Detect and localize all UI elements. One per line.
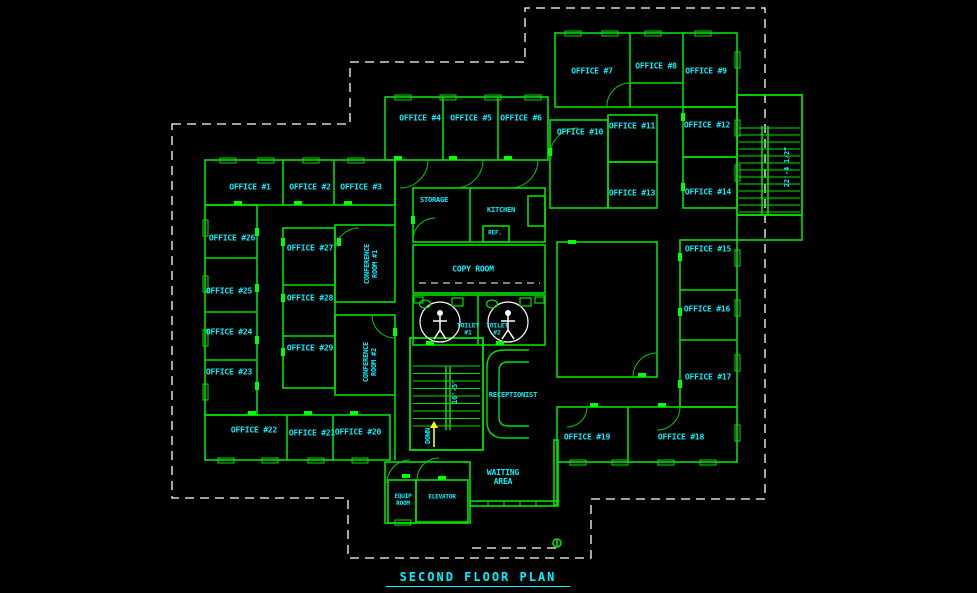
room-label-office-7: OFFICE #7 <box>571 66 613 75</box>
room-label-office-9: OFFICE #9 <box>685 66 727 75</box>
room-label-copy-room: COPY ROOM <box>452 264 494 273</box>
room-label-office-2: OFFICE #2 <box>289 182 331 191</box>
floor-plan-drawing <box>0 0 977 593</box>
room-label-waiting-area: WAITING AREA <box>487 468 519 486</box>
room-label-kitchen: KITCHEN <box>487 206 515 214</box>
exterior-stair <box>737 95 802 240</box>
room-label-office-27: OFFICE #27 <box>287 243 333 252</box>
room-label-office-26: OFFICE #26 <box>209 233 255 242</box>
floor-plan-canvas: OFFICE #1 OFFICE #2 OFFICE #3 OFFICE #4 … <box>0 0 977 593</box>
room-label-office-1: OFFICE #1 <box>229 182 271 191</box>
room-label-office-24: OFFICE #24 <box>206 327 252 336</box>
room-label-toilet-2: TOILET #2 <box>486 323 508 338</box>
interior-stair <box>410 338 483 450</box>
room-label-office-15: OFFICE #15 <box>685 244 731 253</box>
room-label-office-20: OFFICE #20 <box>335 427 381 436</box>
room-label-toilet-1: TOILET #1 <box>457 323 479 338</box>
room-label-office-25: OFFICE #25 <box>206 286 252 295</box>
room-label-office-4: OFFICE #4 <box>399 113 441 122</box>
room-label-ref: REF. <box>488 231 502 238</box>
room-label-storage: STORAGE <box>420 196 448 204</box>
room-label-office-22: OFFICE #22 <box>231 425 277 434</box>
exterior-stair-dimension: 22'-4 1/2" <box>783 147 791 187</box>
room-label-elevator: ELEVATOR <box>428 495 455 502</box>
walls-top-middle-wing <box>385 97 548 160</box>
room-label-office-23: OFFICE #23 <box>206 367 252 376</box>
room-label-office-6: OFFICE #6 <box>500 113 542 122</box>
room-label-office-10: OFFICE #10 <box>557 127 603 136</box>
room-label-office-8: OFFICE #8 <box>635 61 677 70</box>
room-label-equip-room: EQUIP ROOM <box>394 494 411 508</box>
room-label-conference-2: CONFERENCE ROOM #2 <box>362 342 378 382</box>
room-label-office-14: OFFICE #14 <box>685 187 731 196</box>
room-label-receptionist: RECEPTIONIST <box>489 391 537 399</box>
interior-stair-dimension: 16'-5" <box>451 380 459 404</box>
stair-down-label: DOWN <box>424 428 432 444</box>
room-label-office-19: OFFICE #19 <box>564 432 610 441</box>
room-label-office-16: OFFICE #16 <box>684 304 730 313</box>
room-label-office-29: OFFICE #29 <box>287 343 333 352</box>
room-label-office-5: OFFICE #5 <box>450 113 492 122</box>
room-label-office-18: OFFICE #18 <box>658 432 704 441</box>
room-label-office-11: OFFICE #11 <box>609 121 655 130</box>
room-label-office-28: OFFICE #28 <box>287 293 333 302</box>
drawing-title: SECOND FLOOR PLAN <box>386 570 571 587</box>
room-label-office-12: OFFICE #12 <box>684 120 730 129</box>
room-label-conference-1: CONFERENCE ROOM #1 <box>363 244 379 284</box>
room-label-office-21: OFFICE #21 <box>289 428 335 437</box>
room-label-office-13: OFFICE #13 <box>609 188 655 197</box>
room-label-office-3: OFFICE #3 <box>340 182 382 191</box>
room-label-office-17: OFFICE #17 <box>685 372 731 381</box>
